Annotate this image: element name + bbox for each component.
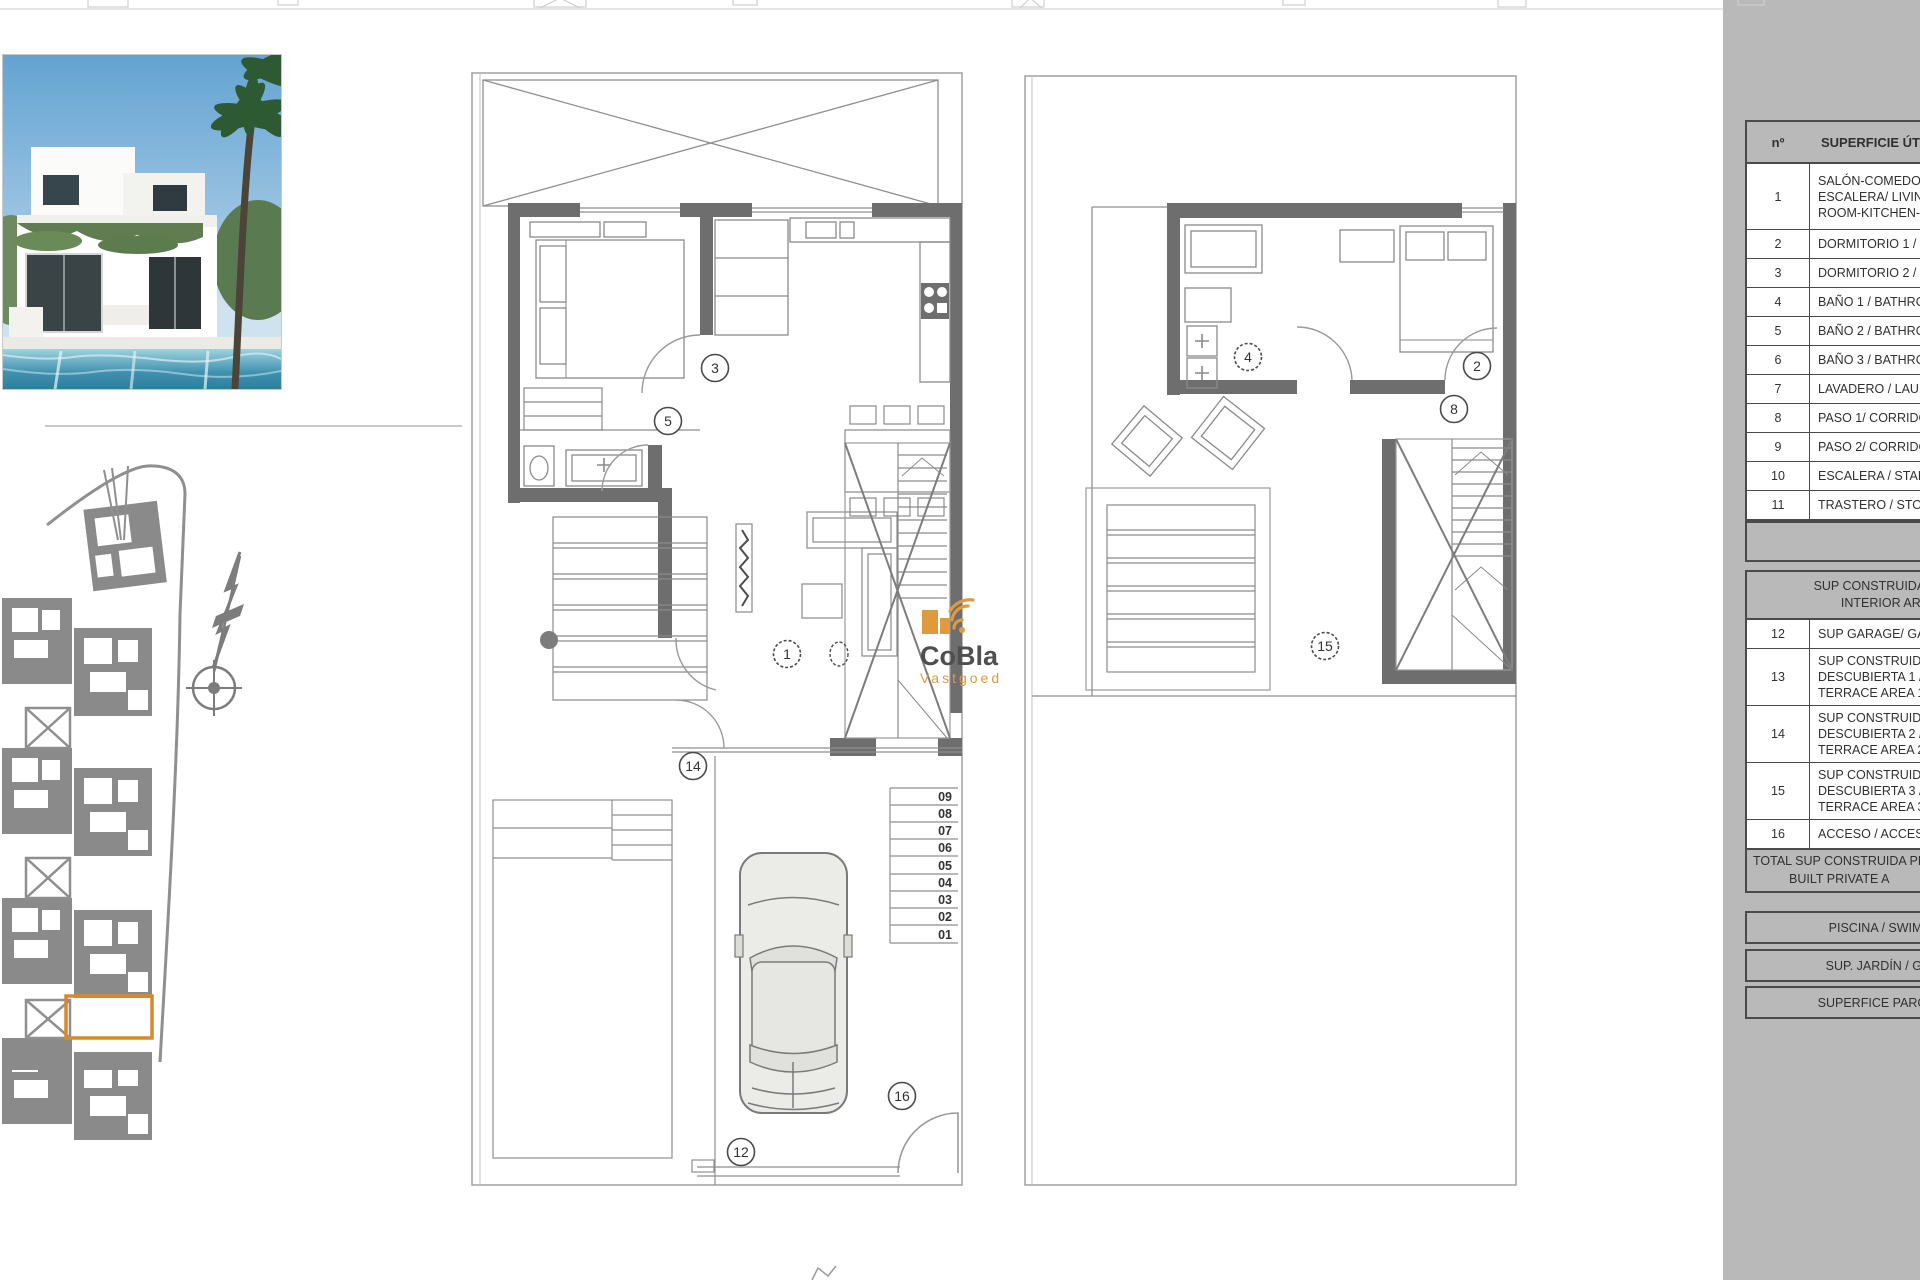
plan1-access-door (898, 1113, 958, 1173)
svg-text:4: 4 (1244, 349, 1252, 365)
plan1-wardrobe (524, 388, 602, 430)
table-row: 7LAVADERO / LAU (1747, 374, 1920, 403)
row-number: 9 (1747, 433, 1810, 461)
row-number: 13 (1747, 649, 1810, 705)
row-number: 1 (1747, 164, 1810, 229)
plan1-door-patio (676, 638, 716, 690)
row-label: LAVADERO / LAU (1810, 375, 1920, 403)
svg-text:16: 16 (894, 1088, 910, 1104)
stove-icon (921, 283, 949, 319)
svg-text:1: 1 (783, 646, 791, 662)
row-number: 14 (1747, 706, 1810, 762)
car-icon (735, 853, 852, 1113)
plan2-upper-floor: 4 2 8 15 (1025, 76, 1516, 1185)
useful-surface-table: nº SUPERFICIE ÚTILE 1SALÓN-COMEDORESCALE… (1745, 120, 1920, 521)
row-number: 3 (1747, 259, 1810, 287)
site-highlight-plot (66, 996, 152, 1038)
plan2-stairs (1396, 439, 1512, 670)
plan1-labels: 3 5 1 (655, 355, 849, 668)
row-label: BAÑO 1 / BATHRO (1810, 288, 1920, 316)
table-row: 14SUP CONSTRUIDADESCUBIERTA 2 /TERRACE A… (1747, 705, 1920, 762)
plan1-door-bath (602, 445, 648, 491)
plan2-door-bath (1297, 327, 1352, 380)
site-plan (2, 466, 244, 1140)
svg-text:02: 02 (938, 910, 952, 924)
interior-area-header: SUP CONSTRUIDA INTE INTERIOR ARE (1747, 572, 1920, 620)
table-header-label: SUPERFICIE ÚTILE (1809, 135, 1920, 150)
pool-bar: PISCINA / SWIMMIN (1745, 911, 1920, 944)
row-number: 16 (1747, 820, 1810, 848)
table-row: 5BAÑO 2 / BATHRO (1747, 316, 1920, 345)
row-label: ESCALERA / STAIR (1810, 462, 1920, 490)
svg-text:07: 07 (938, 824, 952, 838)
table-row: 4BAÑO 1 / BATHRO (1747, 287, 1920, 316)
table-row: 16ACCESO / ACCESS (1747, 819, 1920, 848)
row-number: 15 (1747, 763, 1810, 819)
svg-text:5: 5 (664, 413, 672, 429)
row-number: 10 (1747, 462, 1810, 490)
row-number: 12 (1747, 620, 1810, 648)
row-number: 7 (1747, 375, 1810, 403)
total-band: TOTAL SUP CONSTRUIDA PR BUILT PRIVATE A (1747, 848, 1920, 891)
svg-text:04: 04 (938, 876, 952, 890)
table-header: nº SUPERFICIE ÚTILE (1747, 122, 1920, 164)
row-label: SUP CONSTRUIDADESCUBIERTA 1 /TERRACE ARE… (1810, 649, 1920, 705)
subtotal-band (1745, 521, 1920, 562)
svg-text:14: 14 (685, 758, 701, 774)
table-row: 11TRASTERO / STOR (1747, 490, 1920, 519)
table-header-no: nº (1747, 135, 1809, 150)
plan2-terrace-slats (1086, 488, 1270, 690)
table-row: 13SUP CONSTRUIDADESCUBIERTA 1 /TERRACE A… (1747, 648, 1920, 705)
svg-text:05: 05 (938, 859, 952, 873)
plan2-walls (1167, 203, 1516, 684)
row-number: 6 (1747, 346, 1810, 374)
plan1-stairs (845, 443, 950, 738)
plan2-bed (1340, 226, 1493, 352)
plan1-walls (508, 203, 962, 756)
row-number: 11 (1747, 491, 1810, 519)
row-label: SUP GARAGE/ GA (1810, 620, 1920, 648)
garage-ramp-numbers: 09 08 07 06 05 04 03 02 01 (890, 788, 958, 943)
svg-text:06: 06 (938, 841, 952, 855)
plan2-lounge-chairs (1112, 397, 1265, 477)
svg-text:12: 12 (733, 1144, 749, 1160)
row-label: ACCESO / ACCESS (1810, 820, 1920, 848)
table-row: 10ESCALERA / STAIR (1747, 461, 1920, 490)
svg-text:8: 8 (1450, 401, 1458, 417)
row-label: BAÑO 3 / BATHRO (1810, 346, 1920, 374)
row-label: SUP CONSTRUIDADESCUBIERTA 3 /TERRACE ARE… (1810, 763, 1920, 819)
plan1-ground-floor: 3 5 1 (472, 73, 962, 1185)
row-label: DORMITORIO 1 / (1810, 230, 1920, 258)
plan1-patio-deck (540, 517, 707, 700)
plan1-door-living (676, 700, 724, 748)
garden-bar: SUP. JARDÍN / GARD (1745, 949, 1920, 982)
row-label: PASO 1/ CORRIDO (1810, 404, 1920, 432)
svg-text:2: 2 (1473, 358, 1481, 374)
compass-north-icon (186, 552, 244, 716)
row-label: TRASTERO / STOR (1810, 491, 1920, 519)
row-label: DORMITORIO 2 / (1810, 259, 1920, 287)
row-label: PASO 2/ CORRIDO (1810, 433, 1920, 461)
row-number: 4 (1747, 288, 1810, 316)
table-row: 15SUP CONSTRUIDADESCUBIERTA 3 /TERRACE A… (1747, 762, 1920, 819)
svg-text:08: 08 (938, 807, 952, 821)
top-edge-marks (0, 0, 1764, 9)
svg-text:3: 3 (711, 360, 719, 376)
table-row: 3DORMITORIO 2 / (1747, 258, 1920, 287)
svg-text:01: 01 (938, 928, 952, 942)
table-row: 1SALÓN-COMEDORESCALERA/ LIVINROOM-KITCHE… (1747, 164, 1920, 229)
row-label: BAÑO 2 / BATHRO (1810, 317, 1920, 345)
table-row: 6BAÑO 3 / BATHRO (1747, 345, 1920, 374)
plot-bar: SUPERFICE PARCELA / (1745, 986, 1920, 1019)
bottom-edge-mark (812, 1266, 836, 1280)
row-label: SALÓN-COMEDORESCALERA/ LIVINROOM-KITCHEN… (1810, 164, 1920, 229)
table-row: 9PASO 2/ CORRIDO (1747, 432, 1920, 461)
floorplan-sheet: 3 5 1 (0, 0, 1920, 1280)
row-number: 8 (1747, 404, 1810, 432)
plan1-bed (530, 222, 684, 378)
site-unit-top (83, 466, 166, 591)
row-number: 2 (1747, 230, 1810, 258)
drawing-layer: 3 5 1 (0, 0, 1920, 1280)
svg-text:09: 09 (938, 790, 952, 804)
table-row: 12SUP GARAGE/ GA (1747, 620, 1920, 648)
svg-text:15: 15 (1317, 638, 1333, 654)
plan1-roof-terrace (483, 80, 938, 206)
plan1-kitchen (715, 218, 950, 382)
table-row: 2DORMITORIO 1 / (1747, 229, 1920, 258)
plan1-door-bedroom (642, 335, 700, 393)
row-number: 5 (1747, 317, 1810, 345)
surface-areas-table: nº SUPERFICIE ÚTILE 1SALÓN-COMEDORESCALE… (1745, 120, 1920, 893)
plan1-tv-unit (736, 524, 752, 612)
table-row: 8PASO 1/ CORRIDO (1747, 403, 1920, 432)
svg-text:03: 03 (938, 893, 952, 907)
built-surface-table: SUP CONSTRUIDA INTE INTERIOR ARE 12SUP G… (1745, 570, 1920, 893)
row-label: SUP CONSTRUIDADESCUBIERTA 2 /TERRACE ARE… (1810, 706, 1920, 762)
site-units (2, 598, 152, 1140)
